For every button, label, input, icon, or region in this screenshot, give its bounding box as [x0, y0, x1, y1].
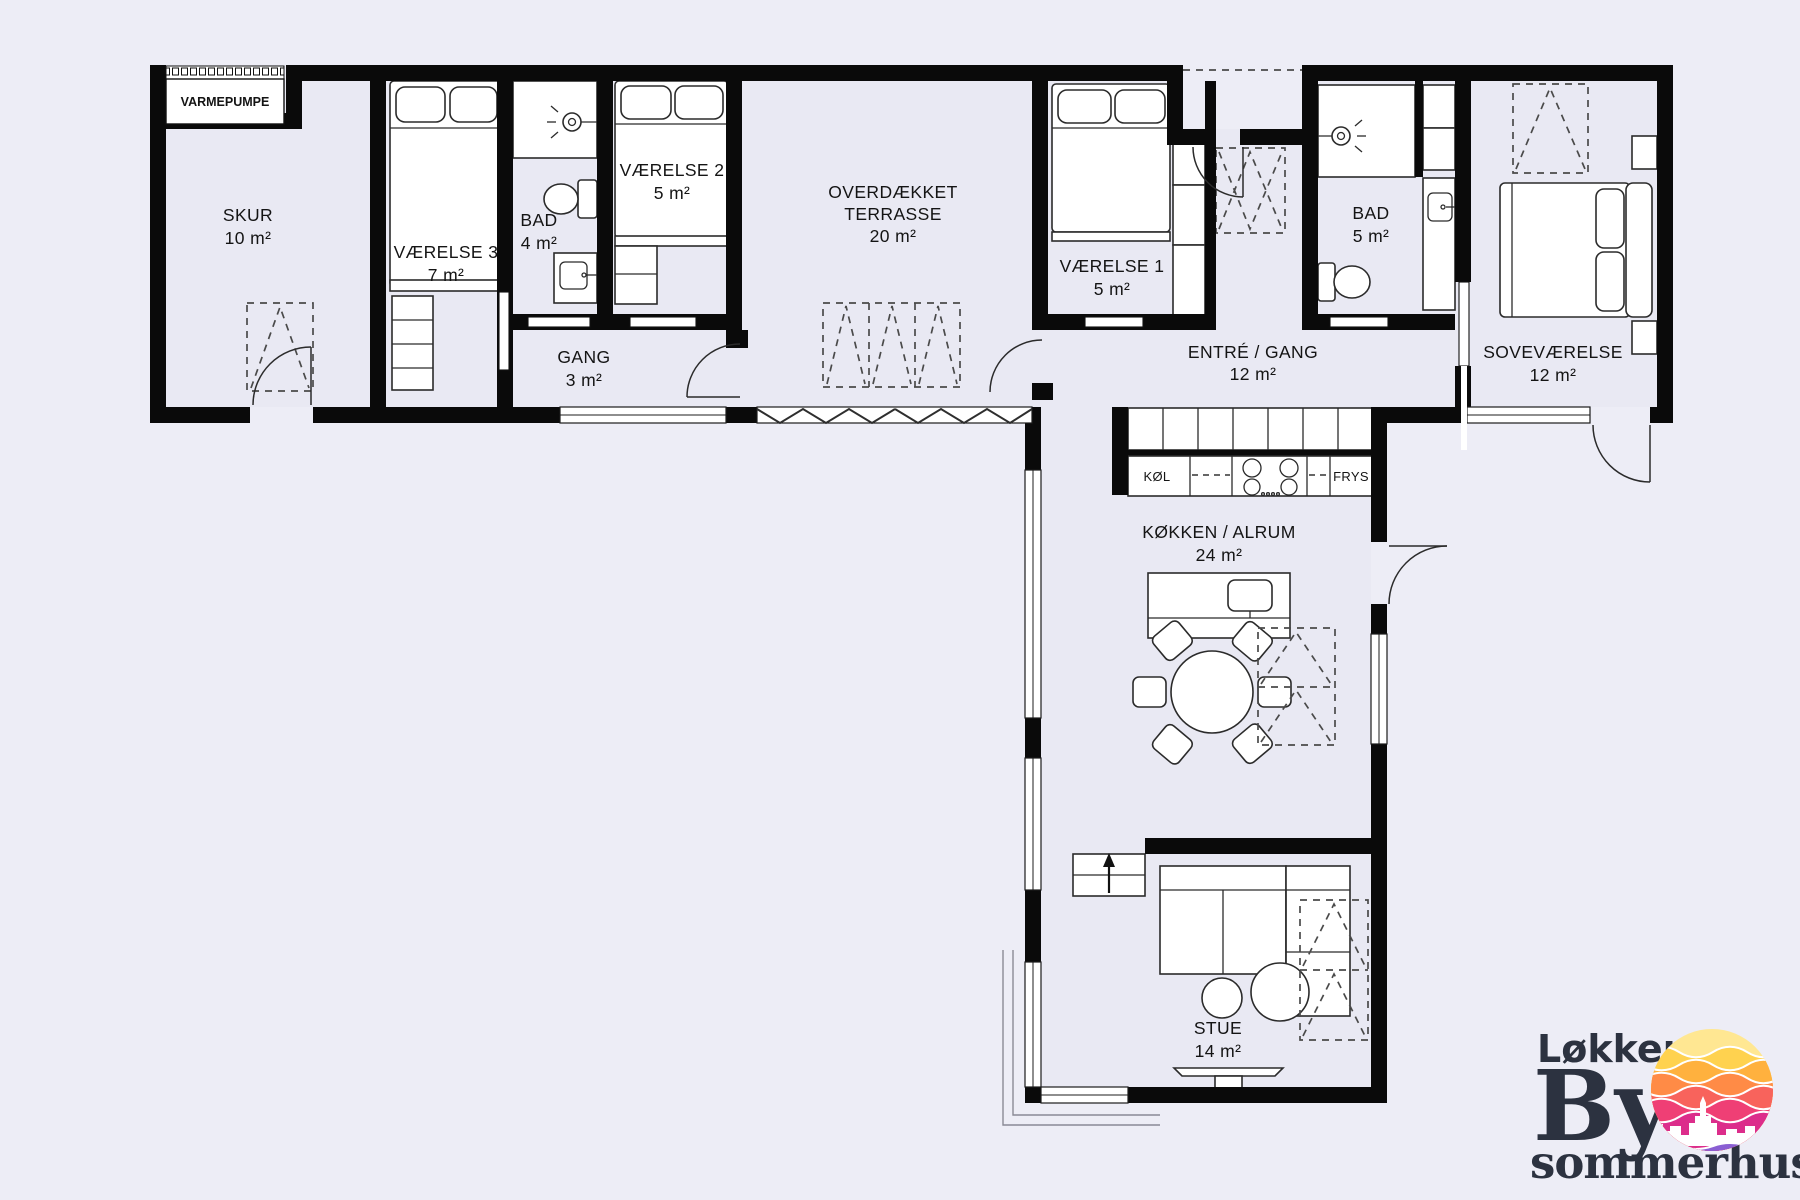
logo: Løkken By sommerhuse: [1530, 1027, 1800, 1189]
entry-step: [1073, 853, 1145, 896]
bed-vaerelse1: [1052, 84, 1170, 241]
varmepumpe-label: VARMEPUMPE: [181, 95, 270, 109]
room-vaerelse3-name: VÆRELSE 3: [394, 242, 499, 262]
room-terrasse-name2: TERRASSE: [844, 204, 942, 224]
room-stue-name: STUE: [1194, 1018, 1242, 1038]
room-bad-lille-name: BAD: [520, 210, 557, 230]
room-entre-area: 12 m²: [1230, 364, 1277, 384]
room-bad-lille-area: 4 m²: [521, 233, 558, 253]
heatpump-unit-icon: [166, 66, 284, 79]
room-bad-stor-name: BAD: [1352, 203, 1389, 223]
logo-sub-text: sommerhuse: [1530, 1136, 1800, 1189]
bed-sovevaerelse: [1500, 183, 1652, 317]
desk-vaerelse2: [615, 246, 657, 304]
room-terrasse-area: 20 m²: [870, 226, 917, 246]
nightstand-bottom: [1632, 321, 1657, 354]
room-skur-name: SKUR: [223, 205, 273, 225]
room-skur-area: 10 m²: [225, 228, 272, 248]
room-gang-area: 3 m²: [566, 370, 603, 390]
room-gang-name: GANG: [557, 347, 610, 367]
shower-bad-stor: [1318, 85, 1415, 177]
dresser-vaerelse3: [392, 296, 433, 390]
toilet-bad-stor: [1318, 263, 1370, 301]
room-vaerelse3-area: 7 m²: [428, 265, 465, 285]
entrance-porch: [1183, 65, 1302, 129]
coffee-table-small: [1202, 978, 1242, 1018]
varmepumpe-box: VARMEPUMPE: [166, 66, 284, 124]
cabinets-bad-stor: [1423, 85, 1455, 310]
room-sovevaerelse-name: SOVEVÆRELSE: [1483, 342, 1623, 362]
shower-bad-lille: [513, 81, 597, 158]
room-vaerelse1-name: VÆRELSE 1: [1060, 256, 1165, 276]
room-terrasse-name1: OVERDÆKKET: [828, 182, 957, 202]
room-entre-name: ENTRÉ / GANG: [1188, 342, 1318, 362]
appliance-koel-label: KØL: [1144, 469, 1171, 484]
room-stue-area: 14 m²: [1195, 1041, 1242, 1061]
nightstand-top: [1632, 136, 1657, 169]
wardrobe-vaerelse1: [1173, 133, 1205, 317]
folding-doors: [757, 407, 1032, 423]
sink-bad-lille: [554, 253, 597, 303]
floorplan: VARMEPUMPE SKUR 10 m² VÆRELSE 3 7 m² BAD…: [0, 0, 1800, 1200]
room-koekken-name: KØKKEN / ALRUM: [1142, 522, 1295, 542]
room-vaerelse2-area: 5 m²: [654, 183, 691, 203]
appliance-frys-label: FRYS: [1333, 469, 1369, 484]
room-vaerelse2-name: VÆRELSE 2: [620, 160, 725, 180]
room-bad-stor-area: 5 m²: [1353, 226, 1390, 246]
room-vaerelse1-area: 5 m²: [1094, 279, 1131, 299]
room-koekken-area: 24 m²: [1196, 545, 1243, 565]
room-sovevaerelse-area: 12 m²: [1530, 365, 1577, 385]
